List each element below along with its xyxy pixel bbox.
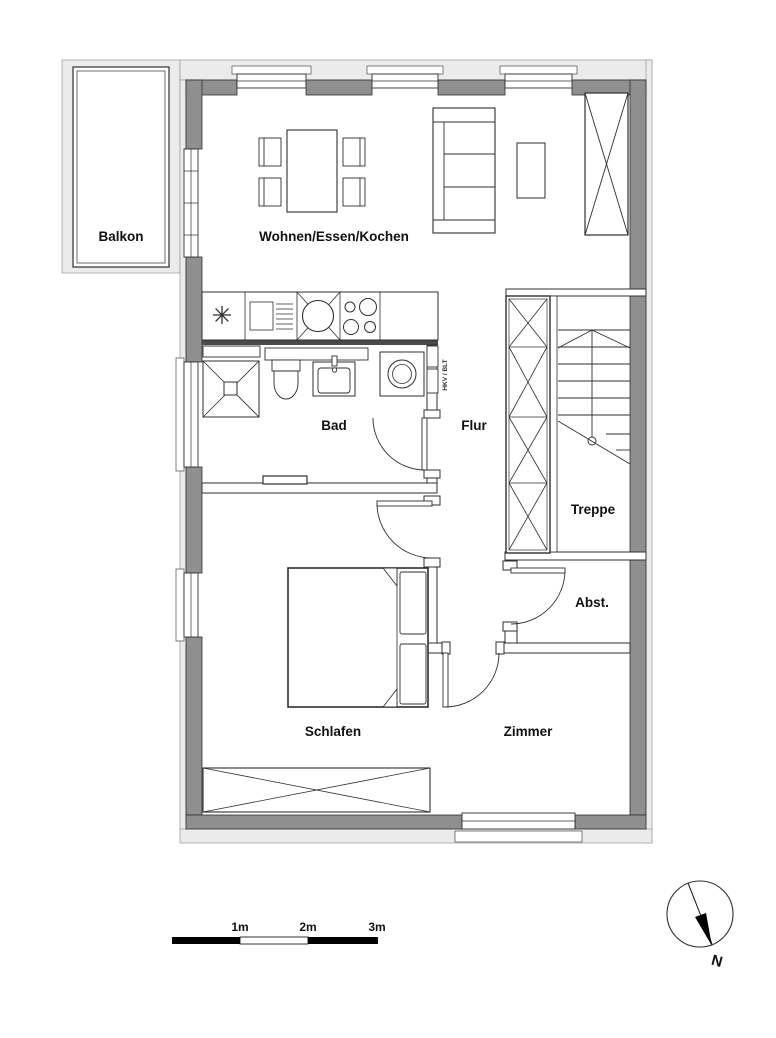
room-label-wohnen: Wohnen/Essen/Kochen (259, 229, 409, 244)
shaft-annotation: HKV / BLT (442, 359, 449, 390)
shower-icon (203, 361, 259, 417)
scale-tick-2m: 2m (299, 920, 316, 934)
wardrobe (203, 768, 430, 812)
room-label-schlafen: Schlafen (305, 724, 361, 739)
freezer-star-icon (213, 306, 231, 324)
toilet-icon (272, 360, 300, 399)
bathroom-fixtures (203, 346, 438, 484)
room-label-flur: Flur (461, 418, 487, 433)
scale-tick-1m: 1m (231, 920, 248, 934)
exterior-walls (186, 80, 646, 829)
stairs (558, 330, 630, 464)
bedroom-furniture (203, 568, 430, 812)
scale-tick-3m: 3m (368, 920, 385, 934)
room-label-abst: Abst. (575, 595, 609, 610)
dining-table (259, 130, 365, 212)
washbasin-icon (313, 356, 355, 396)
scale-bar: 1m 2m 3m (172, 920, 386, 944)
room-label-balkon: Balkon (98, 229, 143, 244)
washing-machine-icon (380, 352, 424, 396)
double-bed (288, 568, 428, 707)
room-label-zimmer: Zimmer (504, 724, 554, 739)
hkv-cabinet (427, 346, 438, 367)
floor-plan-page: Balkon Wohnen/Essen/Kochen Bad Flur Trep… (0, 0, 776, 1038)
north-arrow-icon: N (667, 881, 733, 971)
tall-cabinet (585, 93, 628, 235)
floor-plan-canvas: Balkon Wohnen/Essen/Kochen Bad Flur Trep… (0, 0, 776, 1038)
installation-shaft (506, 296, 550, 553)
sofa (433, 108, 495, 233)
blt-cabinet (427, 369, 438, 393)
coffee-table (517, 143, 545, 198)
radiator (263, 476, 307, 484)
north-letter: N (709, 952, 724, 971)
kitchen-counter (202, 292, 438, 340)
room-label-treppe: Treppe (571, 502, 616, 517)
living-furniture (259, 93, 628, 235)
room-label-bad: Bad (321, 418, 347, 433)
